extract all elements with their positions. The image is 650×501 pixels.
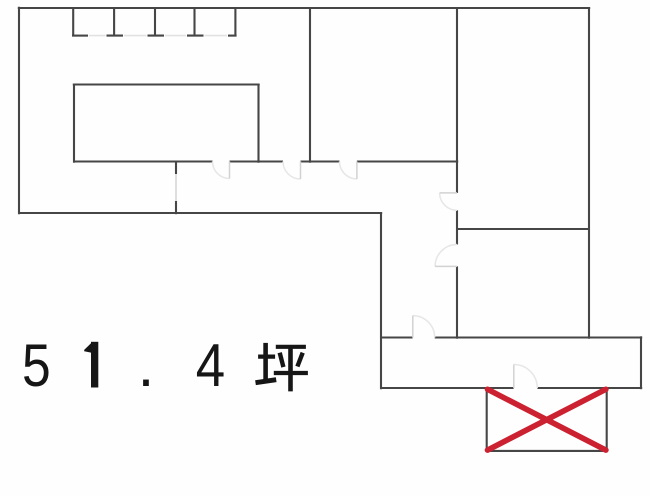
svg-text:5: 5	[22, 331, 51, 399]
svg-text:4: 4	[196, 332, 225, 399]
svg-text:.: .	[138, 332, 155, 399]
